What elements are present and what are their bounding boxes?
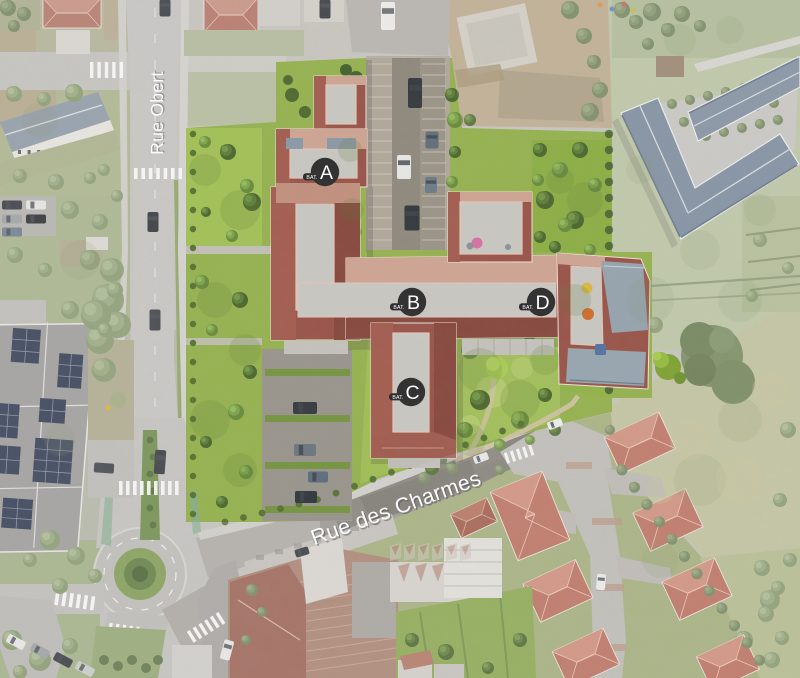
svg-text:BAT.: BAT. <box>306 175 317 181</box>
svg-text:BAT.: BAT. <box>522 305 533 311</box>
svg-text:Rue Obert: Rue Obert <box>147 71 167 154</box>
svg-text:BAT.: BAT. <box>393 305 404 311</box>
svg-text:A: A <box>320 162 333 184</box>
svg-text:BAT.: BAT. <box>392 395 403 401</box>
svg-text:C: C <box>405 382 419 404</box>
svg-text:D: D <box>535 292 549 314</box>
svg-text:B: B <box>407 292 420 314</box>
